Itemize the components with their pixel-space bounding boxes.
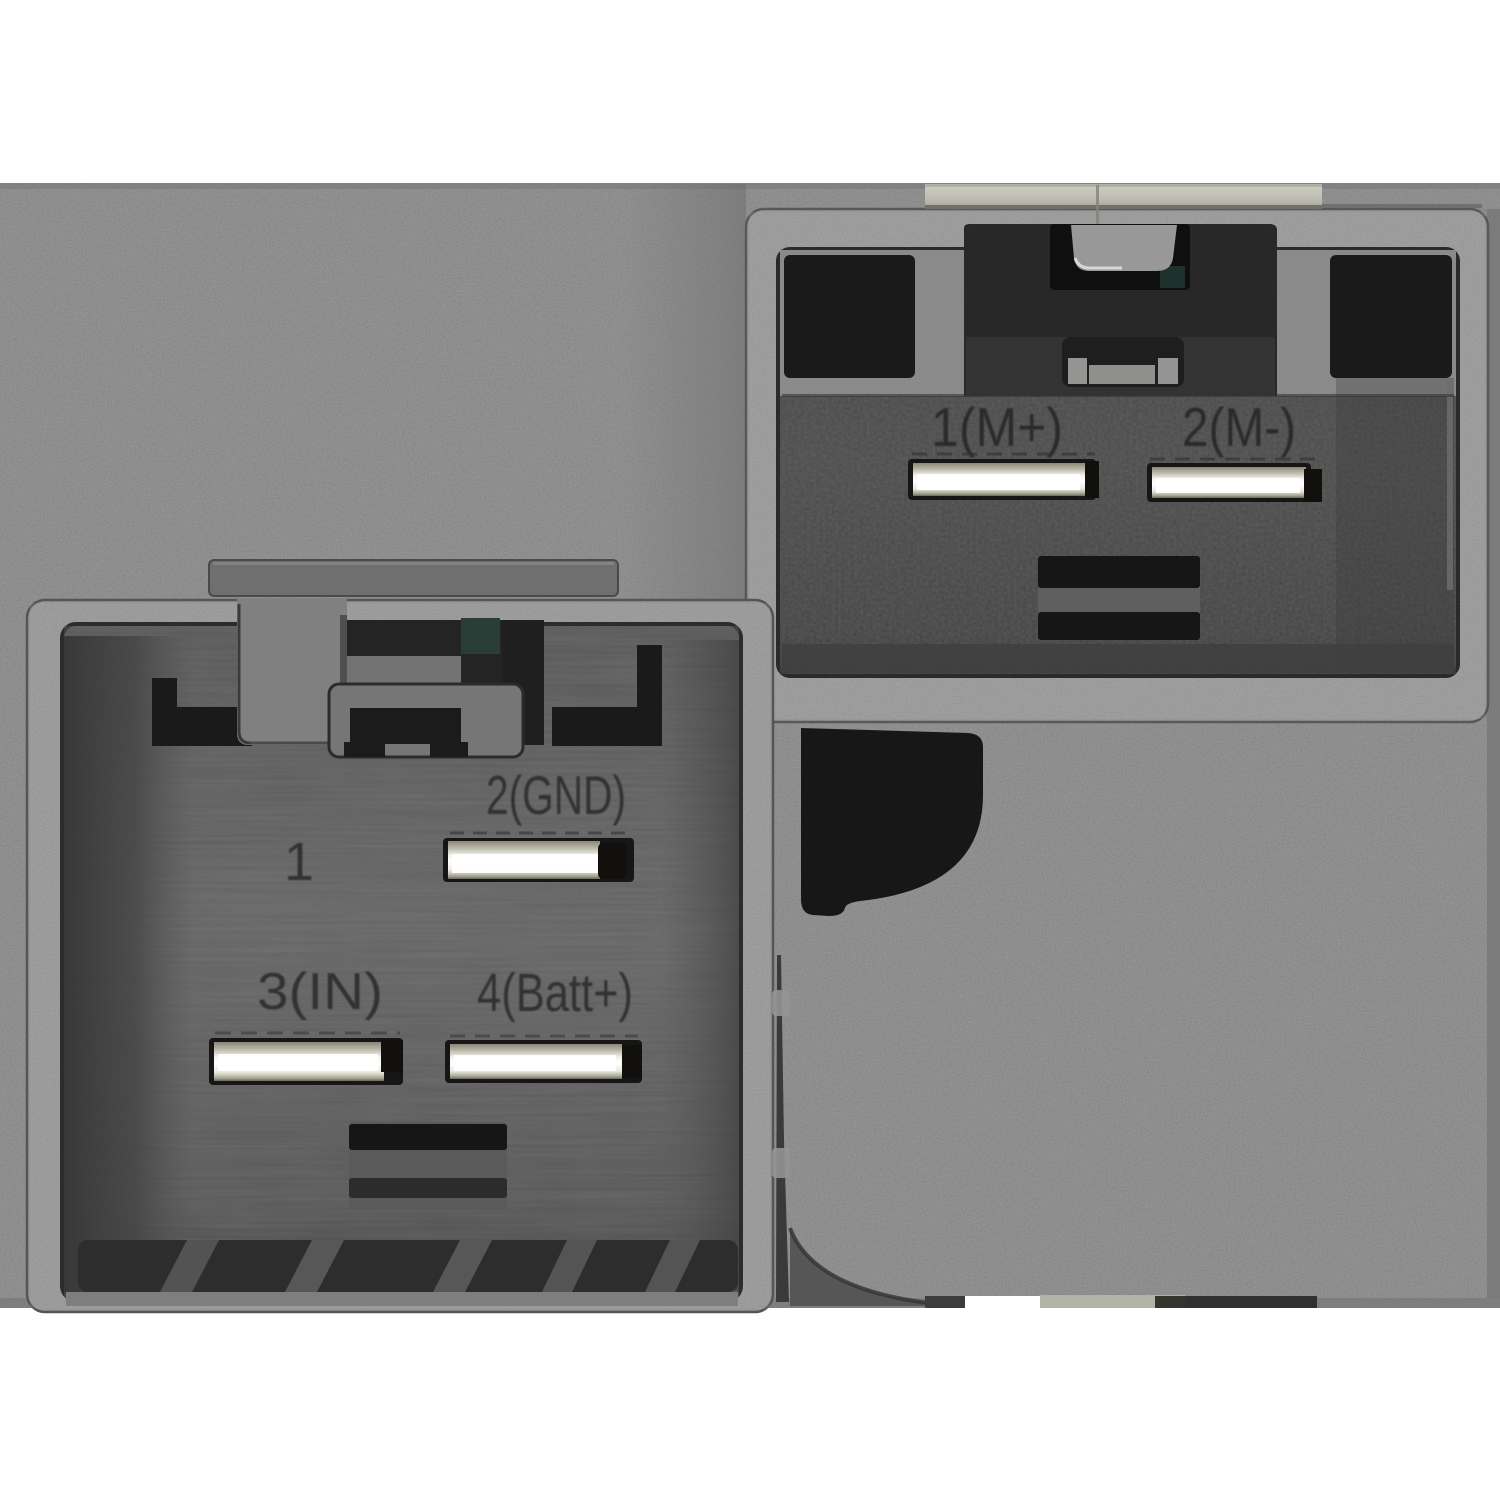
svg-text:1(M+): 1(M+) [931, 396, 1063, 458]
svg-text:2(GND): 2(GND) [486, 764, 626, 826]
svg-text:2(M-): 2(M-) [1182, 396, 1296, 458]
svg-text:4(Batt+): 4(Batt+) [477, 963, 633, 1023]
svg-text:3(IN): 3(IN) [257, 963, 383, 1021]
svg-text:1: 1 [284, 832, 314, 892]
